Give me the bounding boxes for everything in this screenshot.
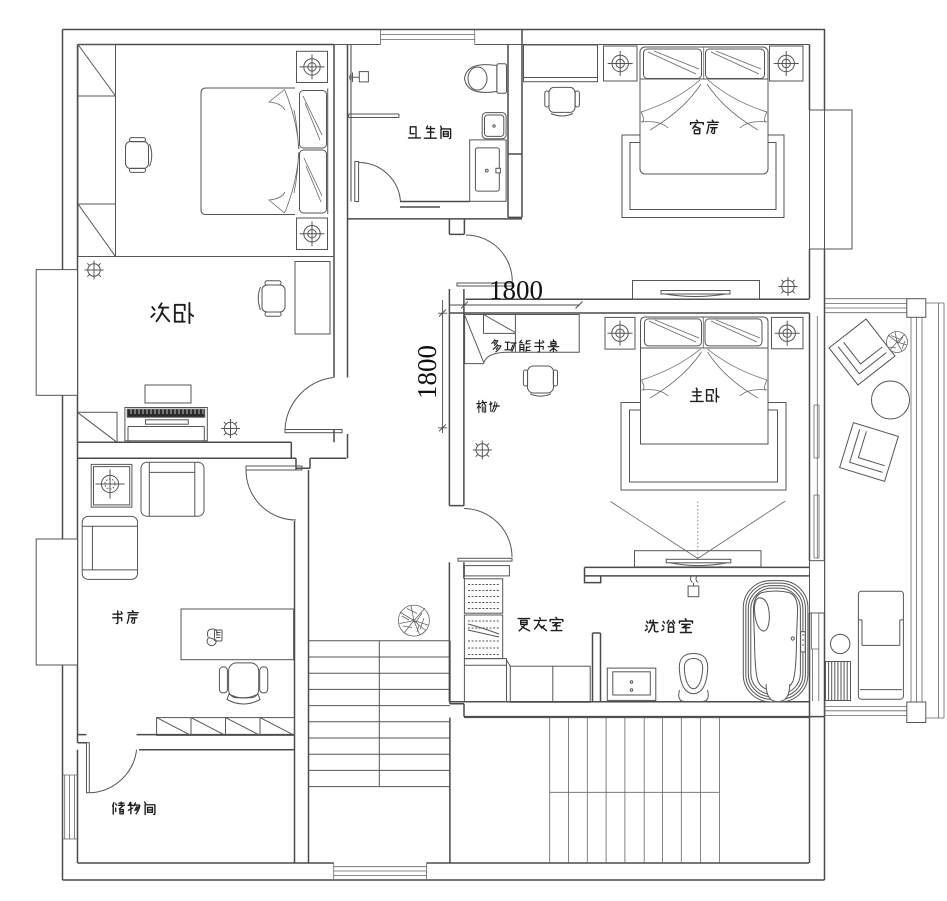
svg-text:1800: 1800: [489, 275, 543, 305]
svg-text:1800: 1800: [412, 345, 442, 399]
